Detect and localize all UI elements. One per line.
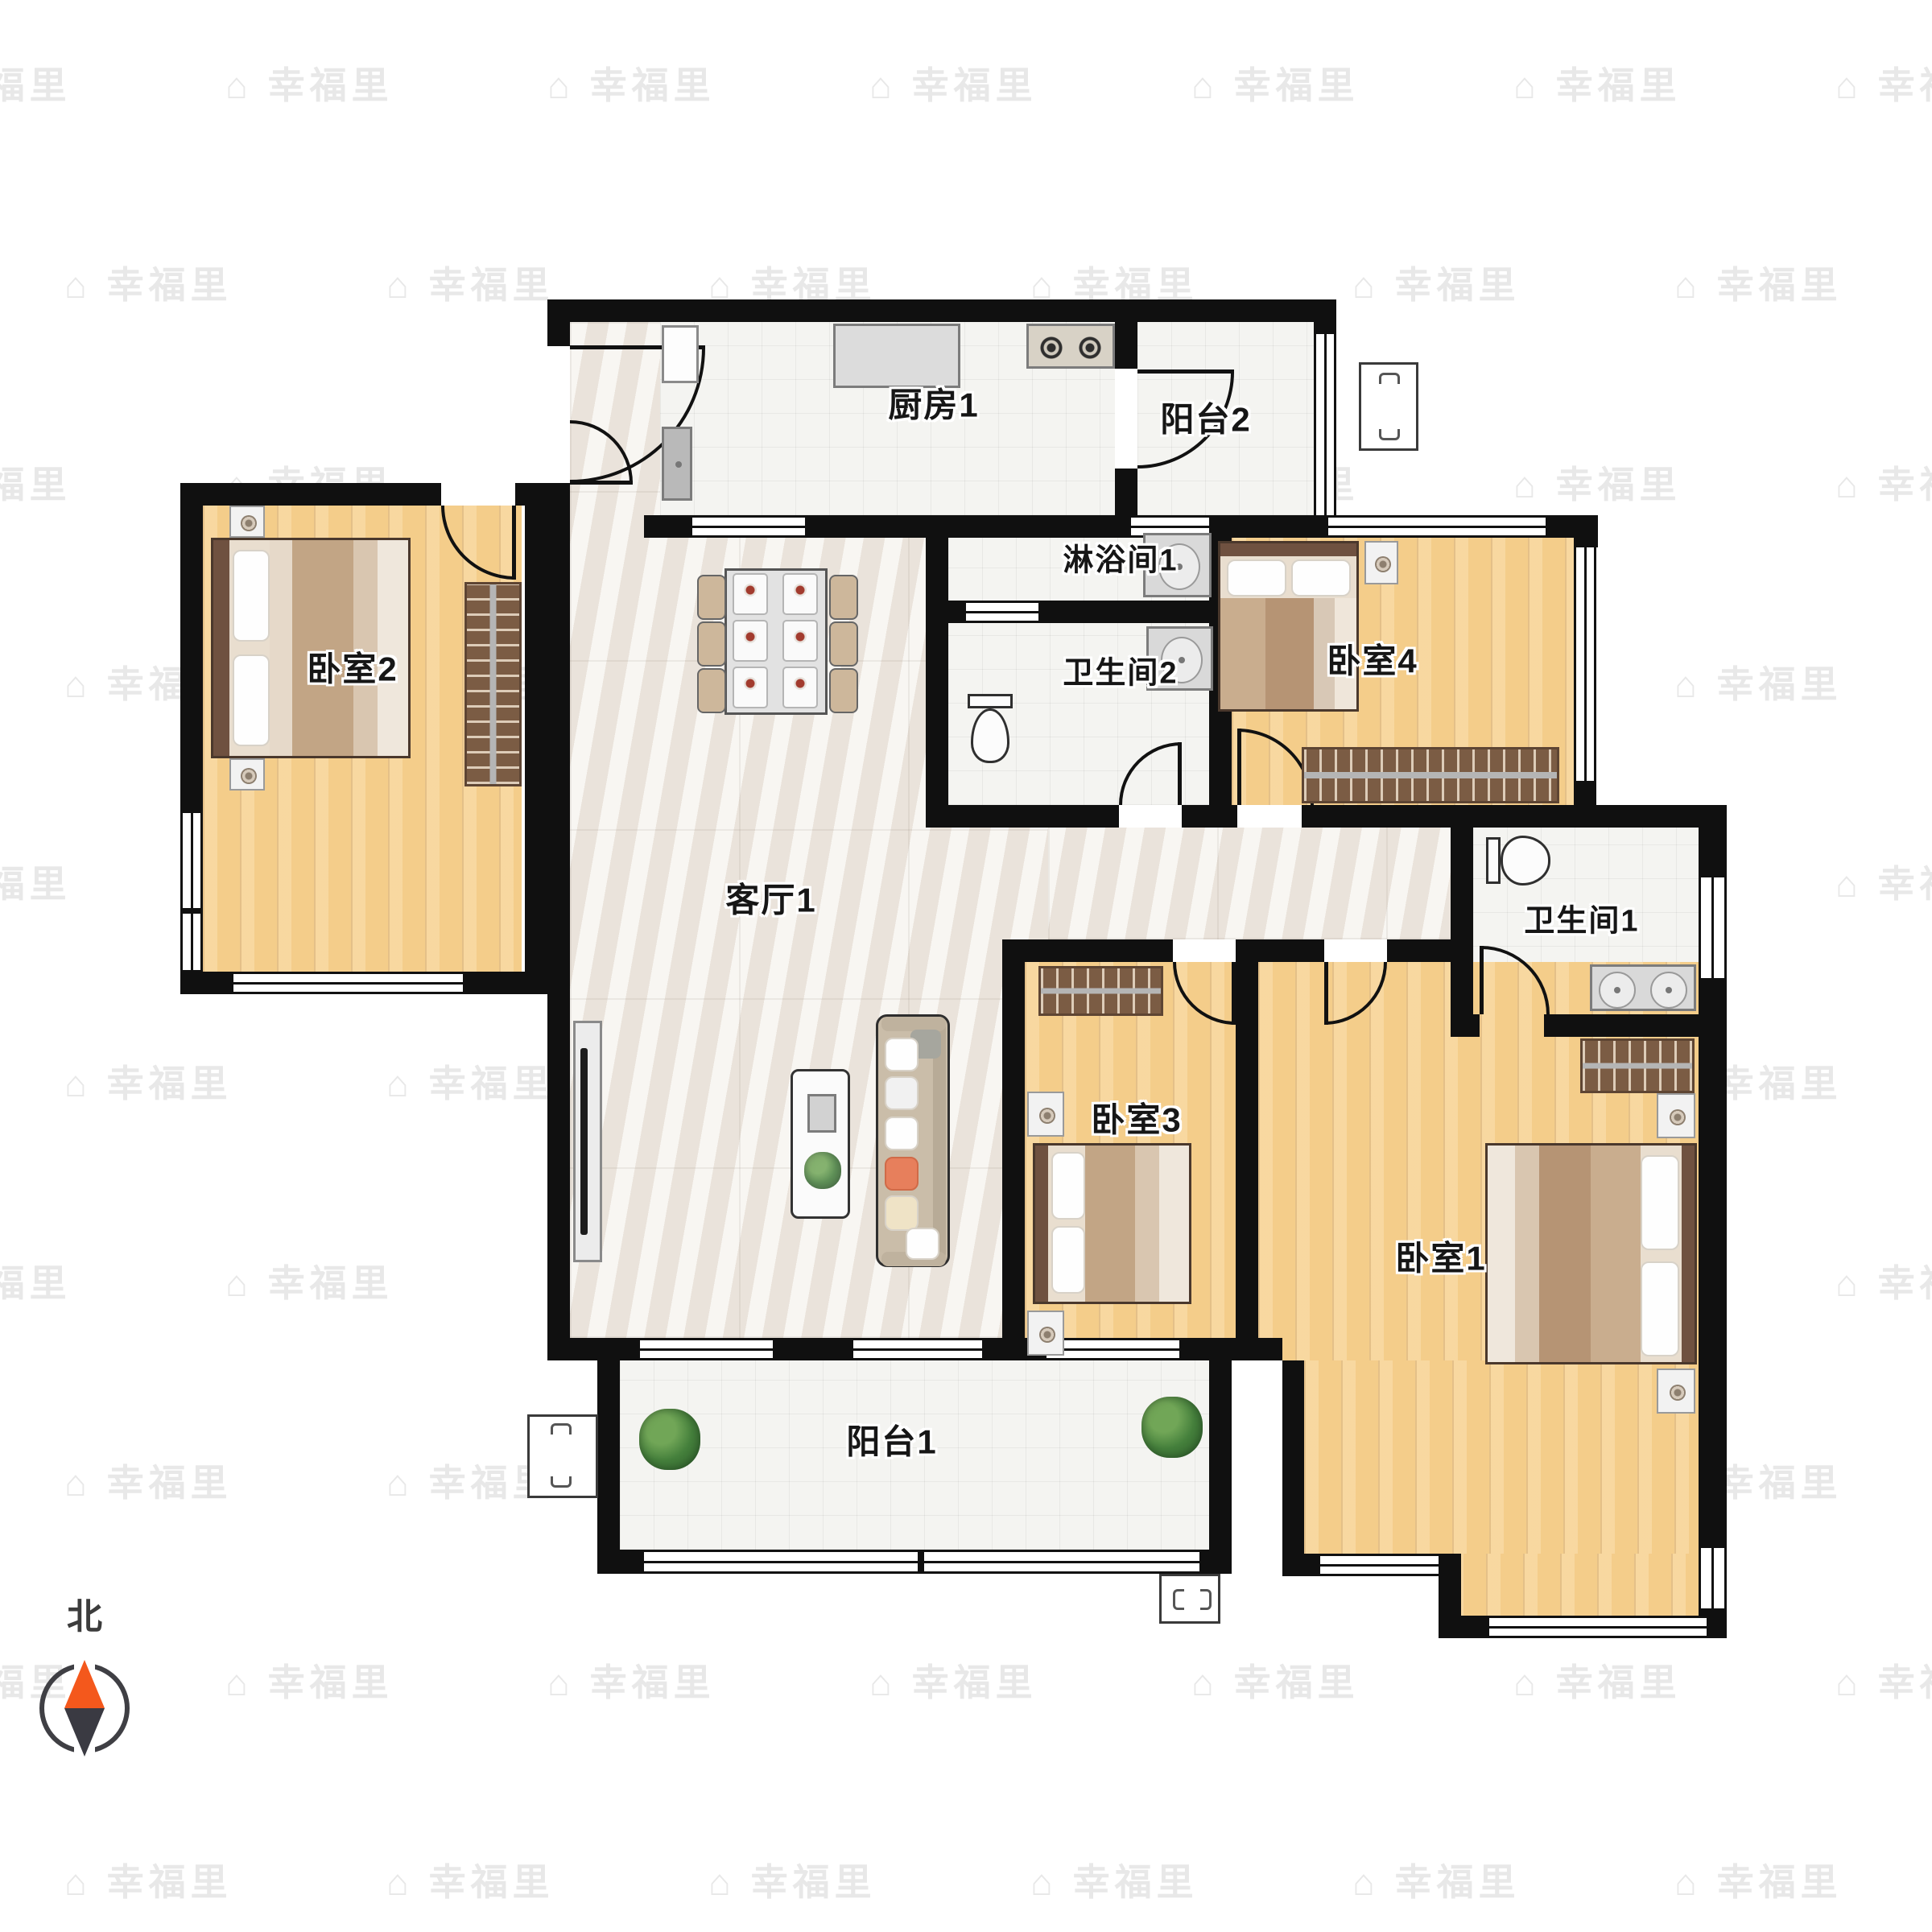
- watermark: ⌂ 幸福里: [708, 1853, 877, 1906]
- bathroom1-window: [1699, 877, 1727, 978]
- watermark: ⌂ 幸福里: [869, 56, 1038, 109]
- dining-chair: [697, 575, 726, 620]
- bedroom1-door-leaf: [1324, 962, 1328, 1025]
- bedroom1-window-bottom-b: [1489, 1616, 1707, 1638]
- compass-needle-north: [64, 1660, 105, 1708]
- wall: [948, 601, 966, 623]
- nightstand: [1364, 541, 1398, 584]
- wall: [1002, 939, 1173, 962]
- wall: [180, 483, 441, 506]
- watermark: ⌂ 幸福里: [64, 1055, 233, 1108]
- nightstand: [1657, 1368, 1695, 1414]
- wall: [515, 483, 570, 506]
- wall: [1451, 828, 1473, 1037]
- burner-icon: [1037, 333, 1066, 362]
- living-balcony-slider: [640, 1338, 773, 1360]
- stove: [1026, 324, 1115, 369]
- wall: [1002, 962, 1025, 1360]
- bedroom2-window-left-2: [180, 914, 203, 970]
- watermark: ⌂ 幸福里: [1513, 456, 1682, 509]
- watermark: ⌂ 幸福里: [547, 1653, 716, 1707]
- room-label-living: 客厅1: [725, 873, 816, 923]
- watermark: ⌂ 幸福里: [0, 855, 72, 908]
- hallway-floor: [1048, 828, 1451, 939]
- wall: [1451, 805, 1727, 828]
- ac-unit: [1359, 362, 1418, 451]
- watermark: ⌂ 幸福里: [1835, 855, 1932, 908]
- wall: [597, 1360, 620, 1574]
- wall: [1387, 939, 1451, 962]
- wall: [1282, 1360, 1304, 1554]
- nightstand: [1657, 1093, 1695, 1138]
- watermark: ⌂ 幸福里: [386, 1055, 555, 1108]
- ac-unit: [527, 1414, 598, 1498]
- wall: [1451, 1014, 1480, 1037]
- bedroom2-window-bottom: [233, 972, 463, 994]
- wall: [1236, 962, 1258, 1360]
- wall: [597, 1550, 644, 1574]
- bedroom3-window-bottom: [1046, 1338, 1179, 1360]
- watermark: ⌂ 幸福里: [1835, 456, 1932, 509]
- bedroom4-door-leaf: [1237, 729, 1241, 805]
- living-window-bottom: [853, 1338, 982, 1360]
- wall: [525, 506, 547, 972]
- kitchen-sink: [662, 427, 692, 501]
- watermark: ⌂ 幸福里: [1513, 1653, 1682, 1707]
- watermark: ⌂ 幸福里: [386, 1853, 555, 1906]
- dining-chair: [829, 575, 858, 620]
- watermark: ⌂ 幸福里: [1352, 256, 1521, 309]
- place-setting: [782, 667, 818, 708]
- bedroom1-window-bottom-a: [1320, 1554, 1441, 1576]
- bedroom1-bed: [1485, 1143, 1697, 1364]
- watermark: ⌂ 幸福里: [64, 256, 233, 309]
- north-label: 北: [67, 1587, 102, 1639]
- wall: [1707, 1616, 1727, 1638]
- dining-chair: [697, 668, 726, 713]
- watermark: ⌂ 幸福里: [869, 1653, 1038, 1707]
- watermark: ⌂ 幸福里: [1835, 1653, 1932, 1707]
- wall: [1699, 828, 1727, 877]
- watermark: ⌂ 幸福里: [1352, 1853, 1521, 1906]
- wall: [1236, 939, 1324, 962]
- room-label-bathroom2: 卫生间2: [1063, 648, 1178, 692]
- tv-cabinet: [573, 1021, 602, 1262]
- table-flowers: [804, 1152, 841, 1189]
- watermark: ⌂ 幸福里: [1674, 256, 1843, 309]
- bedroom2-window-left: [180, 813, 203, 908]
- watermark: ⌂ 幸福里: [547, 56, 716, 109]
- room-label-balcony1: 阳台1: [846, 1415, 937, 1464]
- wall: [1115, 469, 1137, 515]
- watermark: ⌂ 幸福里: [1835, 56, 1932, 109]
- wall: [180, 908, 203, 914]
- watermark: ⌂ 幸福里: [225, 1653, 394, 1707]
- wall: [918, 1550, 924, 1574]
- watermark: ⌂ 幸福里: [64, 1454, 233, 1507]
- wall: [1461, 1616, 1489, 1638]
- wall: [1199, 1550, 1232, 1574]
- compass-needle-south: [64, 1708, 105, 1757]
- bedroom4-bed: [1218, 541, 1359, 712]
- bathroom2-door-leaf: [1178, 742, 1182, 805]
- room-label-balcony2: 阳台2: [1160, 393, 1251, 442]
- bedroom4-wardrobe: [1302, 747, 1559, 803]
- nightstand: [229, 758, 265, 791]
- wall: [1574, 781, 1596, 805]
- watermark: ⌂ 幸福里: [1191, 1653, 1360, 1707]
- room-label-kitchen: 厨房1: [888, 378, 979, 427]
- wall: [1209, 1360, 1232, 1574]
- sofa: [876, 1014, 950, 1267]
- place-setting: [782, 573, 818, 615]
- plant-icon: [639, 1409, 700, 1470]
- bedroom1-floor-corner: [1449, 1554, 1699, 1616]
- tv-icon: [580, 1048, 588, 1235]
- watermark: ⌂ 幸福里: [1674, 1853, 1843, 1906]
- wall: [1209, 515, 1328, 538]
- wall: [1302, 805, 1451, 828]
- wall: [1282, 1554, 1320, 1576]
- wall: [547, 1338, 640, 1360]
- room-label-bedroom2: 卧室2: [307, 642, 398, 691]
- wall: [1574, 515, 1598, 547]
- wall: [1314, 299, 1336, 334]
- nightstand: [1027, 1092, 1064, 1137]
- washing-machine: [1159, 1574, 1220, 1624]
- bedroom2-wardrobe: [464, 582, 522, 786]
- bedroom1-wardrobe: [1580, 1038, 1695, 1093]
- wall: [1038, 601, 1209, 623]
- wall: [547, 322, 570, 346]
- wall: [926, 515, 948, 828]
- room-label-bathroom1: 卫生间1: [1524, 896, 1639, 940]
- wall: [1699, 978, 1727, 1548]
- place-setting: [733, 667, 768, 708]
- watermark: ⌂ 幸福里: [1513, 56, 1682, 109]
- wall: [926, 805, 1119, 828]
- room-label-shower1: 淋浴间1: [1063, 535, 1178, 580]
- watermark: ⌂ 幸福里: [1674, 655, 1843, 708]
- watermark: ⌂ 幸福里: [225, 1254, 394, 1307]
- bedroom4-window-top: [1328, 515, 1546, 538]
- dining-chair: [829, 621, 858, 667]
- wall: [644, 515, 692, 538]
- wall: [982, 1338, 1002, 1360]
- wall: [1182, 805, 1237, 828]
- wall: [547, 485, 570, 1360]
- balcony2-door-leaf: [1137, 369, 1234, 374]
- watermark: ⌂ 幸福里: [225, 56, 394, 109]
- watermark: ⌂ 幸福里: [0, 456, 72, 509]
- balcony2-window-right: [1314, 334, 1336, 515]
- place-setting: [733, 620, 768, 662]
- room-label-bedroom4: 卧室4: [1327, 634, 1418, 683]
- watermark: ⌂ 幸福里: [1191, 56, 1360, 109]
- entry-door-opening: [547, 346, 570, 485]
- nightstand: [1027, 1311, 1064, 1356]
- bathroom1-door-leaf: [1480, 946, 1484, 1014]
- nightstand: [229, 506, 265, 538]
- place-setting: [733, 573, 768, 615]
- bedroom1-floor-lower: [1304, 1360, 1699, 1554]
- place-setting: [782, 620, 818, 662]
- wall: [180, 506, 203, 813]
- shower-bath2-doorway: [966, 601, 1038, 623]
- bedroom3-door-leaf: [1232, 962, 1236, 1025]
- watermark: ⌂ 幸福里: [0, 56, 72, 109]
- wall: [180, 972, 233, 994]
- wall: [1439, 1554, 1461, 1638]
- room-label-bedroom1: 卧室1: [1395, 1232, 1486, 1281]
- entry-door2-leaf: [570, 481, 633, 485]
- watermark: ⌂ 幸福里: [1835, 1254, 1932, 1307]
- coffee-table: [791, 1069, 850, 1219]
- watermark: ⌂ 幸福里: [64, 1853, 233, 1906]
- wall: [547, 299, 1336, 322]
- watermark: ⌂ 幸福里: [386, 256, 555, 309]
- burner-icon: [1075, 333, 1104, 362]
- bathroom1-double-sink: [1590, 964, 1696, 1011]
- wall: [1115, 322, 1137, 369]
- plant-icon: [1141, 1397, 1203, 1458]
- watermark: ⌂ 幸福里: [0, 1254, 72, 1307]
- bedroom4-window-right: [1574, 547, 1596, 781]
- kitchen-slider: [692, 515, 805, 538]
- watermark: ⌂ 幸福里: [1030, 1853, 1199, 1906]
- dining-chair: [697, 621, 726, 667]
- wall: [463, 972, 570, 994]
- bedroom2-door-leaf: [512, 506, 516, 580]
- bedroom3-wardrobe: [1038, 966, 1163, 1016]
- bedroom3-bed: [1033, 1143, 1191, 1304]
- kitchen-corner-cabinet: [662, 325, 699, 383]
- room-label-bedroom3: 卧室3: [1091, 1093, 1182, 1142]
- bathroom2-toilet: [968, 694, 1013, 708]
- bedroom1-window-right: [1699, 1548, 1727, 1608]
- floor-plan: ⌂ 幸福里⌂ 幸福里⌂ 幸福里⌂ 幸福里⌂ 幸福里⌂ 幸福里⌂ 幸福里⌂ 幸福里…: [0, 0, 1932, 1932]
- bathroom1-toilet-tank: [1486, 837, 1501, 884]
- wall: [773, 1338, 853, 1360]
- dining-chair: [829, 668, 858, 713]
- wall: [1179, 1338, 1282, 1360]
